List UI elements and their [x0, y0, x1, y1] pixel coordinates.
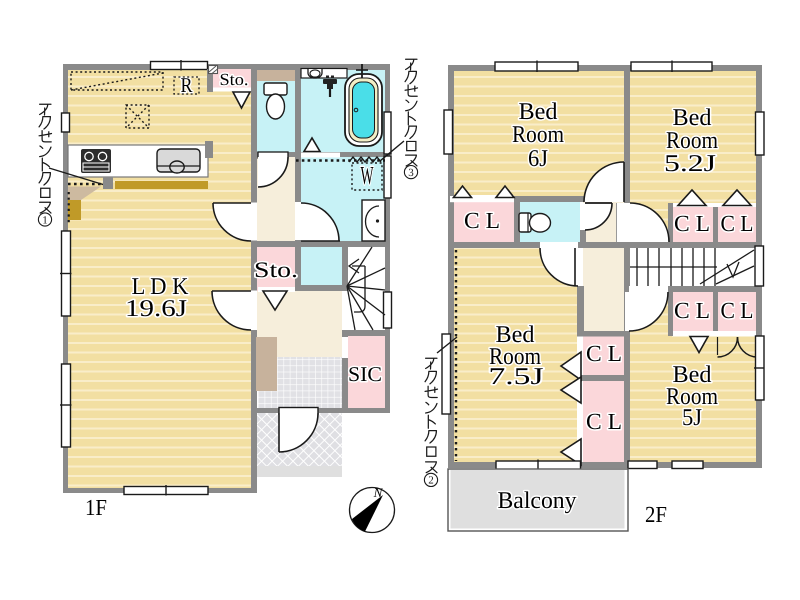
svg-text:C L: C L: [721, 211, 754, 236]
svg-text:SIC: SIC: [348, 362, 382, 386]
svg-text:C L: C L: [464, 208, 500, 233]
svg-text:19.6J: 19.6J: [125, 296, 187, 322]
svg-text:1F: 1F: [85, 495, 107, 520]
svg-text:Sto.: Sto.: [254, 257, 298, 282]
svg-text:Sto.: Sto.: [220, 70, 249, 89]
svg-text:7.5J: 7.5J: [489, 364, 544, 390]
svg-text:C L: C L: [721, 298, 754, 323]
svg-text:Room: Room: [512, 122, 564, 148]
svg-text:C L: C L: [586, 341, 622, 366]
svg-text:5J: 5J: [682, 405, 702, 431]
svg-text:Balcony: Balcony: [498, 488, 577, 514]
svg-text:2F: 2F: [645, 502, 667, 527]
svg-text:C L: C L: [674, 298, 710, 323]
svg-text:3: 3: [408, 167, 414, 179]
svg-text:6J: 6J: [528, 146, 548, 172]
svg-text:C L: C L: [586, 409, 622, 434]
svg-text:N: N: [373, 485, 384, 500]
svg-text:1: 1: [42, 214, 48, 226]
svg-text:5.2J: 5.2J: [664, 151, 716, 177]
svg-text:W: W: [361, 161, 374, 190]
svg-text:2: 2: [428, 475, 434, 487]
svg-text:C L: C L: [674, 211, 710, 236]
